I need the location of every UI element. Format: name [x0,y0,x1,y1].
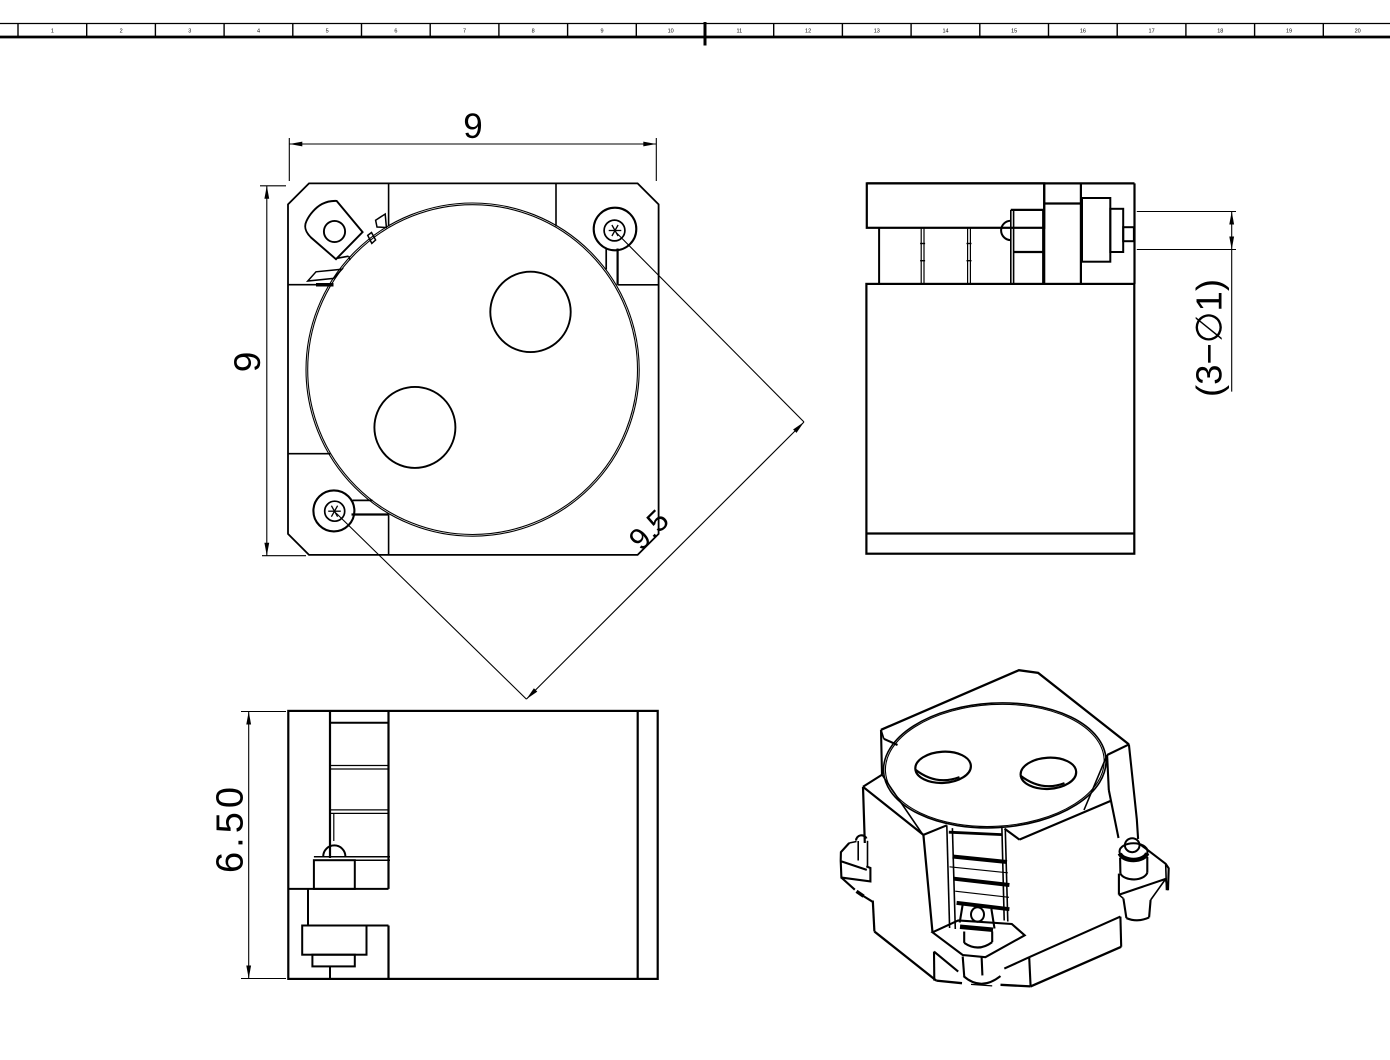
svg-text:20: 20 [1355,29,1361,35]
svg-text:16: 16 [1080,29,1086,35]
svg-text:9: 9 [227,352,268,373]
svg-text:9: 9 [600,29,603,35]
svg-text:(3−∅1): (3−∅1) [1189,279,1230,397]
svg-text:4: 4 [257,29,260,35]
svg-text:14: 14 [942,29,948,35]
svg-text:9: 9 [463,107,482,146]
svg-text:2: 2 [120,29,123,35]
svg-text:10: 10 [668,29,674,35]
svg-text:3: 3 [188,29,191,35]
svg-text:17: 17 [1149,29,1155,35]
svg-text:6.50: 6.50 [210,783,252,873]
svg-text:6: 6 [394,29,397,35]
svg-text:5: 5 [326,29,329,35]
svg-text:12: 12 [805,29,811,35]
svg-text:8: 8 [532,29,535,35]
svg-text:9.5: 9.5 [623,504,676,557]
svg-text:11: 11 [737,29,743,35]
svg-text:1: 1 [51,29,54,35]
svg-text:19: 19 [1286,29,1292,35]
svg-text:15: 15 [1011,29,1017,35]
svg-text:18: 18 [1217,29,1223,35]
svg-text:13: 13 [874,29,880,35]
svg-text:7: 7 [463,29,466,35]
